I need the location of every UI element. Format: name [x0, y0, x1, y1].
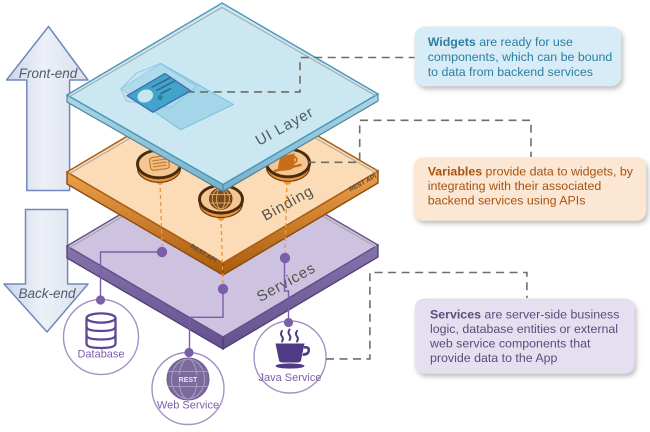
svg-text:REST: REST: [179, 377, 198, 384]
svg-text:web service components that: web service components that: [429, 337, 591, 351]
svg-text:backend services using APIs: backend services using APIs: [428, 194, 586, 208]
svg-text:to data from backend services: to data from backend services: [428, 65, 593, 79]
svg-text:Widgets are ready for use: Widgets are ready for use: [428, 35, 573, 49]
svg-text:provide data to the App: provide data to the App: [430, 351, 558, 365]
svg-text:logic, database entities or ex: logic, database entities or external: [430, 322, 618, 336]
svg-text:Web Service: Web Service: [157, 400, 219, 412]
svg-text:integrating with their associa: integrating with their associated: [428, 179, 602, 193]
svg-text:Back-end: Back-end: [18, 286, 76, 301]
svg-text:Variables provide data to widg: Variables provide data to widgets, by: [428, 165, 634, 179]
svg-text:Java Service: Java Service: [259, 372, 322, 384]
svg-text:Database: Database: [77, 349, 124, 361]
svg-text:components, which can be bound: components, which can be bound: [428, 50, 613, 64]
svg-text:Services are server-side busin: Services are server-side business: [430, 308, 619, 322]
svg-text:Front-end: Front-end: [19, 66, 78, 81]
